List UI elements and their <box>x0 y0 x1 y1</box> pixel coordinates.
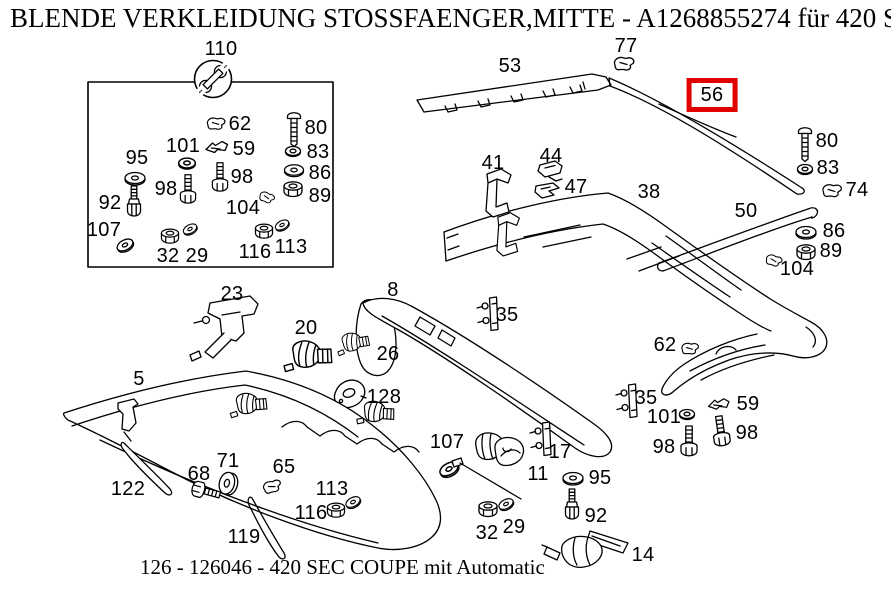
callout-86-b[interactable]: 86 <box>823 221 846 241</box>
callout-119[interactable]: 119 <box>228 527 261 547</box>
callout-95-b[interactable]: 95 <box>589 468 612 488</box>
callout-8[interactable]: 8 <box>387 280 398 300</box>
callout-113-a[interactable]: 113 <box>275 237 308 257</box>
callout-47[interactable]: 47 <box>565 177 588 197</box>
callout-23[interactable]: 23 <box>221 284 244 304</box>
callout-11[interactable]: 11 <box>527 464 548 484</box>
callout-83-a[interactable]: 83 <box>307 142 330 162</box>
callout-116-b[interactable]: 116 <box>295 503 328 523</box>
callout-89-a[interactable]: 89 <box>309 186 332 206</box>
callout-14[interactable]: 14 <box>632 545 655 565</box>
callout-98-a1[interactable]: 98 <box>155 179 178 199</box>
callout-95-a[interactable]: 95 <box>126 148 149 168</box>
callout-35-b[interactable]: 35 <box>635 388 658 408</box>
callout-56[interactable]: 56 <box>687 78 738 112</box>
callout-83-b[interactable]: 83 <box>817 158 840 178</box>
callout-116-a[interactable]: 116 <box>239 242 272 262</box>
callout-20[interactable]: 20 <box>295 318 318 338</box>
callout-104-a[interactable]: 104 <box>226 198 260 218</box>
callout-80-b[interactable]: 80 <box>816 131 839 151</box>
callout-50[interactable]: 50 <box>735 201 758 221</box>
callout-98-b1[interactable]: 98 <box>653 437 676 457</box>
callout-101-a[interactable]: 101 <box>166 136 200 156</box>
callout-92-b[interactable]: 92 <box>585 506 608 526</box>
callout-32-b[interactable]: 32 <box>476 523 499 543</box>
callout-101-b[interactable]: 101 <box>647 407 681 427</box>
callout-86-a[interactable]: 86 <box>309 163 332 183</box>
callout-62-a[interactable]: 62 <box>229 114 252 134</box>
callout-65[interactable]: 65 <box>273 457 296 477</box>
callout-38[interactable]: 38 <box>638 182 661 202</box>
callout-92-a[interactable]: 92 <box>99 193 122 213</box>
callout-62-b[interactable]: 62 <box>654 335 677 355</box>
callout-29-a[interactable]: 29 <box>186 246 209 266</box>
callout-74[interactable]: 74 <box>846 180 869 200</box>
callout-89-b[interactable]: 89 <box>820 241 843 261</box>
callout-32-a[interactable]: 32 <box>157 246 180 266</box>
callout-80-a[interactable]: 80 <box>305 118 328 138</box>
callout-107-a[interactable]: 107 <box>87 220 121 240</box>
callout-53[interactable]: 53 <box>499 56 522 76</box>
callout-98-a2[interactable]: 98 <box>231 167 254 187</box>
callout-layer: 1106280101598395869898899210410732291161… <box>0 0 891 592</box>
callout-41[interactable]: 41 <box>482 153 505 173</box>
callout-98-b2[interactable]: 98 <box>736 423 759 443</box>
callout-122[interactable]: 122 <box>111 479 145 499</box>
parts-diagram-page: BLENDE VERKLEIDUNG STOSSFAENGER,MITTE - … <box>0 0 891 592</box>
callout-107-b[interactable]: 107 <box>430 432 464 452</box>
callout-71[interactable]: 71 <box>217 451 240 471</box>
callout-35-a[interactable]: 35 <box>496 305 519 325</box>
callout-68[interactable]: 68 <box>188 464 211 484</box>
callout-17[interactable]: 17 <box>549 442 572 462</box>
callout-5[interactable]: 5 <box>133 369 144 389</box>
callout-77[interactable]: 77 <box>615 36 638 56</box>
callout-113-b[interactable]: 113 <box>316 479 349 499</box>
callout-29-b[interactable]: 29 <box>503 517 526 537</box>
callout-110[interactable]: 110 <box>205 39 238 59</box>
callout-44[interactable]: 44 <box>540 146 563 166</box>
callout-26[interactable]: 26 <box>377 344 400 364</box>
callout-104-b[interactable]: 104 <box>780 259 814 279</box>
callout-59-a[interactable]: 59 <box>233 139 256 159</box>
callout-59-b[interactable]: 59 <box>737 394 760 414</box>
callout-128[interactable]: 128 <box>367 387 401 407</box>
